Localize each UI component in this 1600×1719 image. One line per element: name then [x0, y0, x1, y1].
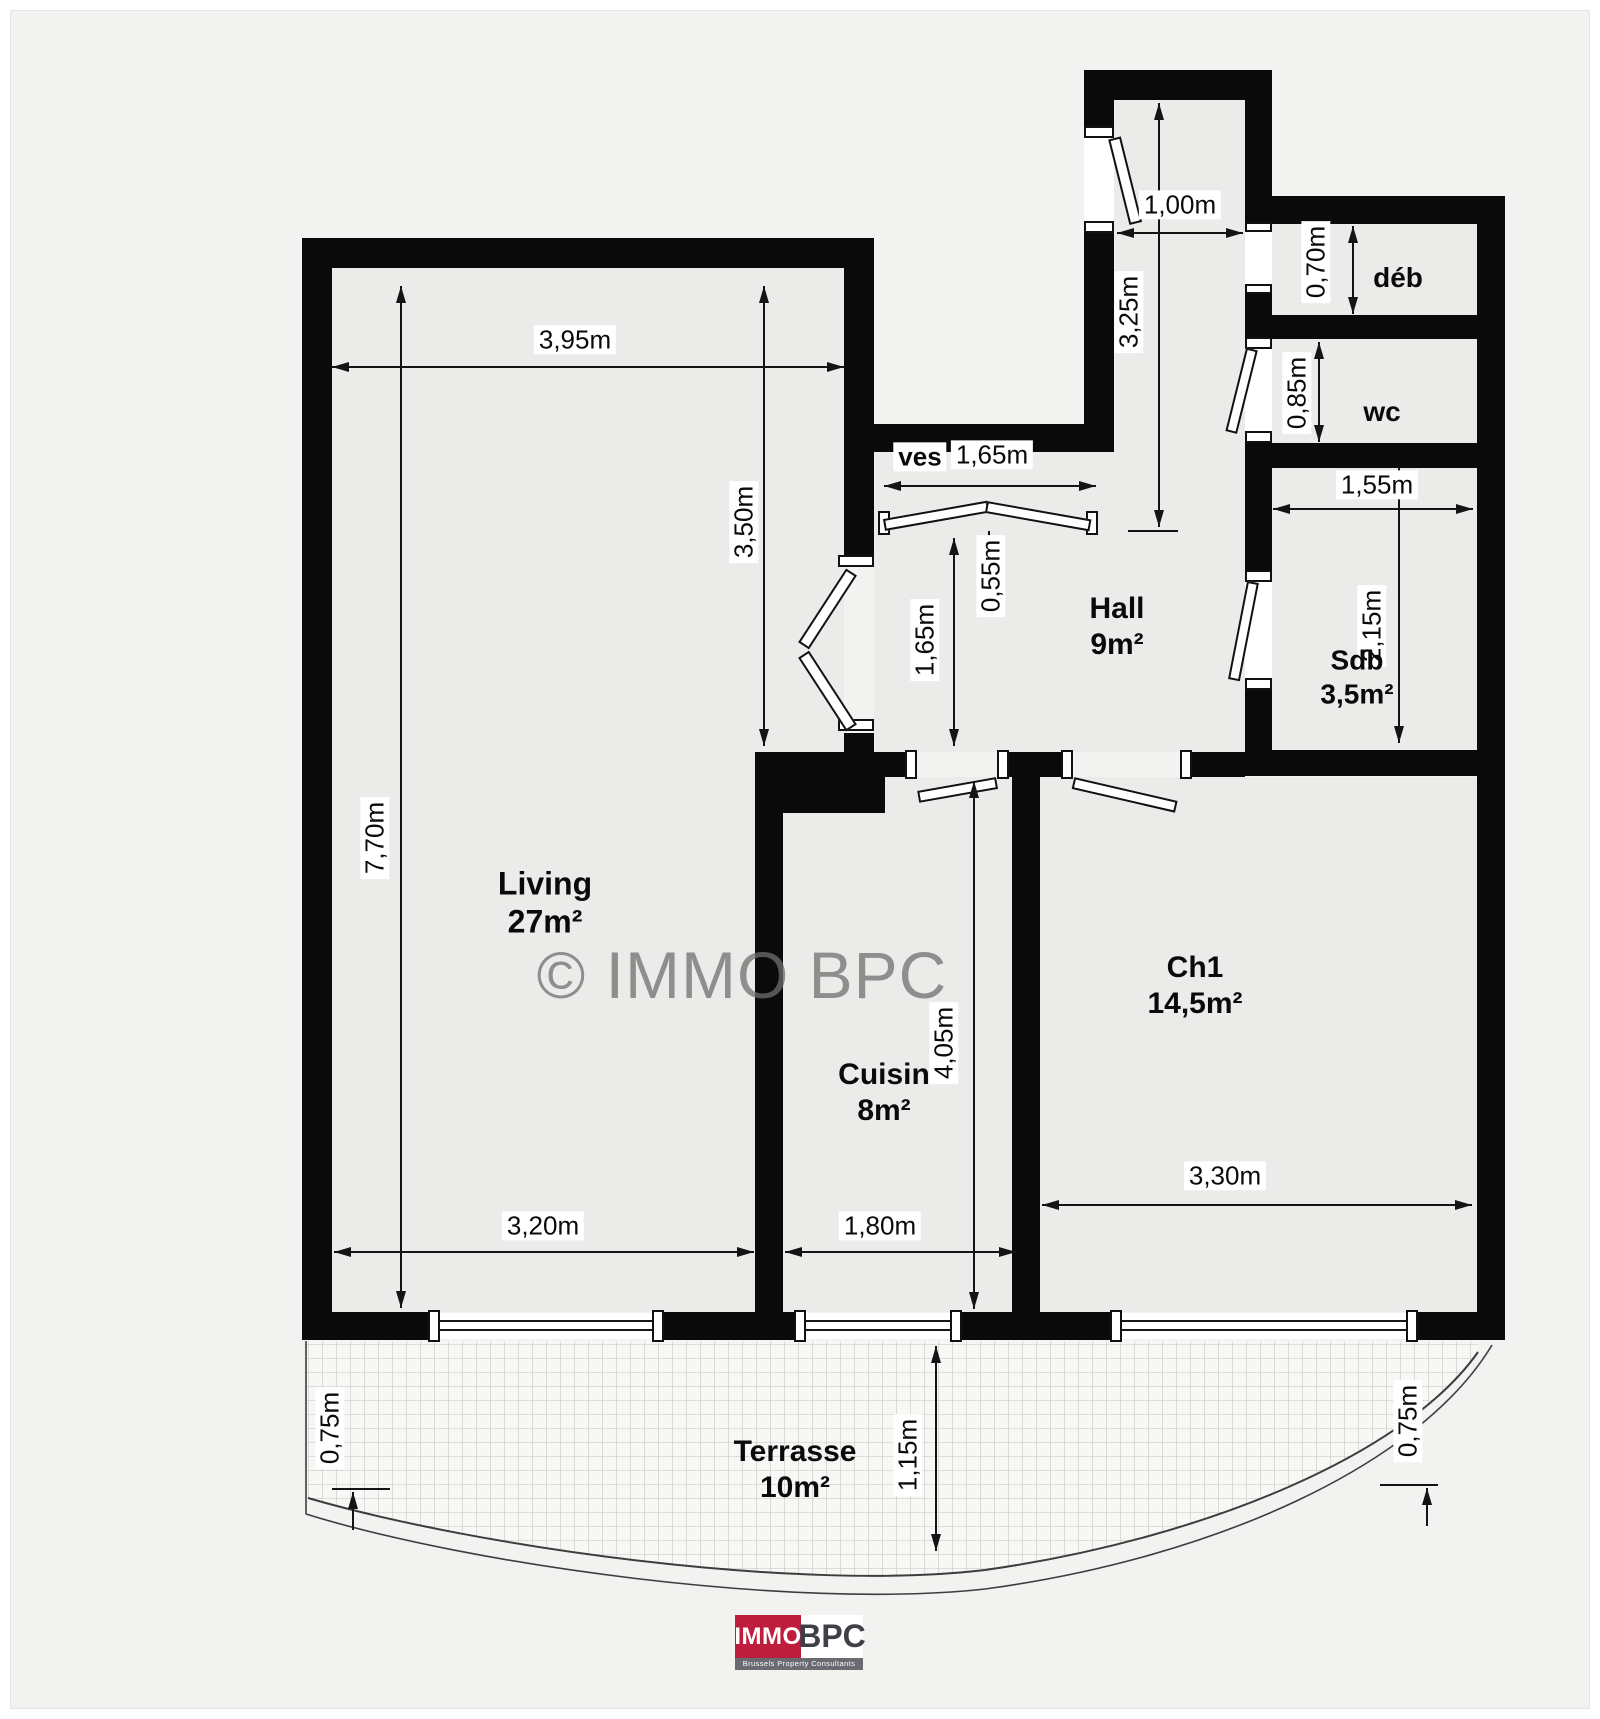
sdb-door-cap-top [1245, 570, 1272, 582]
wc-door-cap-top [1245, 337, 1272, 349]
entry-door-cap-bottom [1084, 221, 1114, 233]
wall-corridor-top [1084, 70, 1272, 100]
watermark: © IMMO BPC [537, 937, 948, 1013]
wall-rightblock-left-3 [1245, 690, 1272, 752]
room-label-terrasse: Terrasse 10m² [734, 1434, 857, 1506]
wall-living-top [302, 238, 874, 268]
room-name-living: Living [498, 865, 592, 903]
floorplan-page: 3,95m 7,70m 3,50m ves 1,65m 1,00m 3,25m … [0, 0, 1600, 1719]
dimension-line-entry-width [1117, 232, 1243, 234]
room-label-hall: Hall 9m² [1089, 591, 1144, 663]
dimension-tick-entry-length [1128, 530, 1178, 532]
wall-deb-top [1245, 196, 1505, 224]
logo-tagline: Brussels Property Consultants [735, 1658, 863, 1670]
dimension-label-wc-depth: 0,85m [1282, 352, 1311, 434]
logo-bpc-block: BPC [801, 1615, 863, 1658]
ch1-window-glazing [1122, 1320, 1406, 1331]
living-window-cap-right [652, 1310, 664, 1342]
wall-sdb-top [1245, 443, 1505, 468]
wall-deb-wc-divider [1245, 315, 1505, 339]
cuisin-window-cap-right [950, 1310, 962, 1342]
deb-opening-cap-bottom [1245, 284, 1272, 294]
dimension-label-ch1-width: 3,30m [1184, 1161, 1266, 1190]
room-label-ch1: Ch1 14,5m² [1147, 950, 1242, 1022]
dimension-line-living-lower-width [334, 1251, 754, 1253]
dimension-label-terrasse-left: 0,75m [315, 1387, 344, 1469]
wall-hall-bottom-2 [1192, 752, 1245, 777]
wall-sdb-bottom [1245, 750, 1505, 776]
wc-door-cap-bottom [1245, 431, 1272, 443]
wall-corridor-right [1245, 70, 1272, 196]
room-label-ves: ves [893, 442, 946, 471]
logo-immo-block: IMMO [735, 1615, 801, 1658]
room-name-deb: déb [1373, 261, 1423, 295]
cuisin-window-glazing [806, 1320, 950, 1331]
dimension-line-hall-depth [953, 538, 955, 746]
dimension-tick-terrasse-right [1380, 1484, 1438, 1486]
ch1-window-cap-left [1110, 1310, 1122, 1342]
wall-bottom-2 [664, 1312, 794, 1340]
wall-living-cuisin-divider [755, 777, 783, 1312]
dimension-line-living-height [400, 286, 402, 1308]
agency-logo-row: IMMO BPC [735, 1615, 863, 1658]
dimension-line-ves-width [884, 485, 1096, 487]
dimension-line-wc-depth [1318, 342, 1320, 442]
room-name-hall: Hall [1089, 591, 1144, 627]
room-name-sdb: Sdb [1320, 643, 1393, 677]
room-name-cuisin: Cuisin [838, 1057, 930, 1093]
dimension-label-entry-length: 3,25m [1114, 271, 1143, 353]
wall-niche-vertical [844, 238, 874, 452]
dimension-label-sdb-width: 1,55m [1336, 470, 1418, 499]
dimension-label-cuisin-height: 4,05m [929, 1002, 958, 1084]
dimension-label-cuisin-width: 1,80m [839, 1211, 921, 1240]
cuisin-door-cap-left [905, 750, 917, 779]
dimension-line-deb-depth [1352, 226, 1354, 314]
room-area-terrasse: 10m² [734, 1470, 857, 1506]
living-frenchdoor-cap-top [838, 555, 874, 567]
wall-living-hall-upper [844, 452, 874, 557]
room-area-ch1: 14,5m² [1147, 986, 1242, 1022]
living-window-cap-left [428, 1310, 440, 1342]
dimension-label-entry-width: 1,00m [1139, 190, 1221, 219]
wall-bottom-1 [302, 1312, 428, 1340]
sdb-door-cap-bottom [1245, 678, 1272, 690]
dimension-arrow-terrasse-left [352, 1492, 354, 1530]
cuisin-window-cap-left [794, 1310, 806, 1342]
room-label-cuisin: Cuisin 8m² [838, 1057, 930, 1129]
ch1-door-cap-left [1061, 750, 1073, 779]
dimension-label-living-width: 3,95m [534, 325, 616, 354]
room-area-sdb: 3,5m² [1320, 677, 1393, 711]
living-window-glazing [438, 1320, 652, 1331]
room-name-terrasse: Terrasse [734, 1434, 857, 1470]
room-label-sdb: Sdb 3,5m² [1320, 643, 1393, 710]
dimension-line-cuisin-height [973, 781, 975, 1309]
room-name-wc: wc [1363, 395, 1400, 429]
dimension-line-sdb-depth [1398, 467, 1400, 743]
dimension-label-hall-step: 0,55m [976, 535, 1005, 617]
wall-hall-pillar-center [1009, 752, 1061, 777]
room-area-hall: 9m² [1089, 627, 1144, 663]
agency-logo: IMMO BPC Brussels Property Consultants [735, 1615, 863, 1670]
deb-opening-cap-top [1245, 222, 1272, 232]
room-label-deb: déb [1373, 261, 1423, 295]
dimension-line-living-width [332, 366, 844, 368]
dimension-line-terrasse-depth [935, 1346, 937, 1551]
wall-hall-bottom-1 [885, 752, 907, 777]
ch1-window-cap-right [1406, 1310, 1418, 1342]
dimension-line-ch1-width [1042, 1204, 1472, 1206]
dimension-line-living-upper-height [763, 286, 765, 746]
ch1-door-cap-right [1180, 750, 1192, 779]
wall-corridor-left-lower [1084, 233, 1114, 452]
dimension-tick-terrasse-left [332, 1488, 390, 1490]
wall-bottom-3 [962, 1312, 1110, 1340]
wall-bottom-4 [1418, 1312, 1505, 1340]
room-label-wc: wc [1363, 395, 1400, 429]
wall-outer-left [302, 238, 332, 1338]
dimension-label-living-upper-height: 3,50m [729, 481, 758, 563]
dimension-line-sdb-width [1273, 508, 1473, 510]
room-label-living: Living 27m² [498, 865, 592, 942]
dimension-label-terrasse-depth: 1,15m [893, 1414, 922, 1496]
room-name-ch1: Ch1 [1147, 950, 1242, 986]
dimension-label-living-height: 7,70m [360, 797, 389, 879]
dimension-label-deb-depth: 0,70m [1301, 221, 1330, 303]
dimension-label-ves-width: 1,65m [951, 440, 1033, 469]
wall-living-hall-lower [844, 733, 874, 752]
dimension-label-terrasse-right: 0,75m [1393, 1380, 1422, 1462]
dimension-label-hall-depth: 1,65m [910, 599, 939, 681]
room-area-living: 27m² [498, 903, 592, 941]
dimension-line-entry-length [1158, 103, 1160, 527]
entry-door-cap-top [1084, 126, 1114, 138]
dimension-label-living-lower-width: 3,20m [502, 1211, 584, 1240]
cuisin-door-cap-right [997, 750, 1009, 779]
room-area-cuisin: 8m² [838, 1093, 930, 1129]
wall-cuisin-ch1-divider [1012, 777, 1040, 1312]
dimension-arrow-terrasse-right [1426, 1488, 1428, 1526]
dimension-line-cuisin-width [785, 1251, 1016, 1253]
